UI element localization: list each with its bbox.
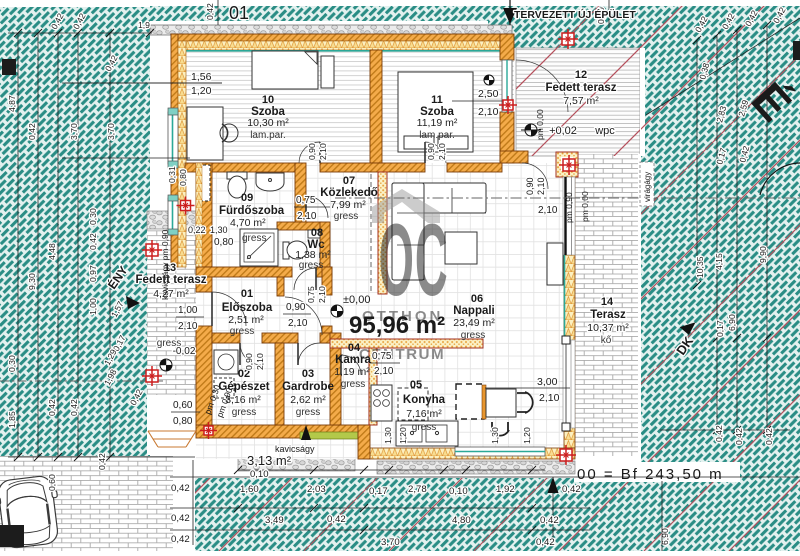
svg-text:Kamra: Kamra: [335, 354, 371, 366]
svg-text:0,31: 0,31: [167, 166, 177, 183]
svg-text:4,87: 4,87: [7, 95, 17, 112]
svg-text:10: 10: [262, 94, 274, 106]
svg-text:2,10: 2,10: [478, 106, 499, 118]
svg-text:0,42: 0,42: [27, 123, 37, 140]
svg-text:2,10: 2,10: [317, 286, 327, 303]
svg-text:gress: gress: [341, 379, 365, 390]
svg-text:2,10: 2,10: [255, 353, 265, 370]
svg-text:-0,02: -0,02: [173, 346, 196, 357]
svg-text:lam.par.: lam.par.: [250, 130, 286, 141]
svg-text:6,90: 6,90: [660, 528, 670, 545]
svg-text:0,42: 0,42: [171, 534, 190, 545]
svg-text:0,42: 0,42: [714, 425, 724, 442]
svg-text:0,42: 0,42: [536, 537, 555, 548]
svg-text:0,80: 0,80: [178, 169, 188, 186]
svg-text:7,16 m²: 7,16 m²: [406, 408, 442, 420]
svg-text:0,42: 0,42: [69, 399, 79, 416]
svg-text:0,60: 0,60: [47, 474, 57, 491]
svg-text:1,92: 1,92: [496, 484, 515, 495]
svg-text:0,75: 0,75: [372, 351, 392, 362]
svg-text:6,90: 6,90: [727, 314, 737, 331]
svg-text:gress: gress: [412, 422, 436, 433]
svg-text:0,42: 0,42: [540, 515, 559, 526]
svg-text:4,48: 4,48: [47, 243, 57, 260]
svg-text:01: 01: [241, 288, 253, 300]
svg-text:2,10: 2,10: [539, 392, 560, 404]
svg-text:virágágy: virágágy: [643, 172, 652, 202]
svg-text:gress: gress: [230, 326, 254, 337]
svg-text:1,20: 1,20: [398, 427, 408, 444]
svg-text:0,17: 0,17: [715, 320, 725, 337]
svg-text:2,10: 2,10: [318, 143, 328, 160]
svg-text:10,37 m²: 10,37 m²: [587, 322, 629, 334]
svg-text:09: 09: [241, 192, 253, 204]
svg-text:1,60: 1,60: [240, 484, 259, 495]
svg-text:0,42: 0,42: [205, 3, 215, 20]
svg-text:03: 03: [302, 368, 314, 380]
svg-text:pm 0,90: pm 0,90: [564, 192, 574, 223]
svg-text:Előszoba: Előszoba: [222, 302, 273, 314]
svg-text:2,10: 2,10: [536, 177, 546, 195]
svg-text:4,70 m²: 4,70 m²: [230, 217, 266, 229]
svg-text:9,90: 9,90: [758, 246, 768, 263]
svg-text:Fedett terasz: Fedett terasz: [136, 274, 207, 286]
svg-text:00 = Bf 243,50 m: 00 = Bf 243,50 m: [577, 466, 724, 483]
svg-text:pm 0,00: pm 0,00: [580, 191, 590, 222]
svg-text:Közlekedő: Közlekedő: [320, 187, 378, 199]
svg-text:1,56: 1,56: [191, 71, 212, 83]
svg-text:1,30: 1,30: [210, 225, 228, 235]
svg-text:4,15: 4,15: [714, 253, 724, 270]
svg-text:gress: gress: [232, 407, 256, 418]
svg-text:0,42: 0,42: [327, 514, 346, 525]
svg-text:2,10: 2,10: [288, 318, 308, 329]
svg-text:Nappali: Nappali: [453, 305, 495, 317]
svg-text:9,30: 9,30: [27, 273, 37, 290]
svg-text:Fürdőszoba: Fürdőszoba: [219, 205, 285, 217]
svg-text:3,49: 3,49: [265, 515, 284, 526]
svg-text:4,27 m²: 4,27 m²: [153, 288, 189, 300]
svg-text:11,19 m²: 11,19 m²: [417, 117, 458, 129]
svg-text:0,90: 0,90: [244, 353, 254, 370]
svg-text:10,30 m²: 10,30 m²: [247, 117, 289, 129]
svg-text:kő: kő: [601, 335, 612, 346]
svg-text:0,42: 0,42: [171, 483, 190, 494]
svg-text:2,10: 2,10: [178, 321, 198, 332]
svg-text:0,80: 0,80: [214, 237, 234, 248]
svg-text:10,35: 10,35: [695, 256, 705, 278]
svg-text:0,90: 0,90: [286, 302, 306, 313]
svg-text:0,42: 0,42: [97, 453, 107, 470]
svg-text:7,99 m²: 7,99 m²: [330, 199, 366, 211]
svg-text:0,42: 0,42: [734, 428, 744, 445]
svg-text:pm 0,00: pm 0,00: [535, 109, 545, 140]
svg-text:1,20: 1,20: [522, 427, 532, 444]
svg-text:23,49 m²: 23,49 m²: [453, 317, 495, 329]
svg-text:OC: OC: [379, 203, 449, 317]
svg-text:2,10: 2,10: [297, 211, 317, 222]
svg-text:gress: gress: [242, 233, 266, 244]
svg-text:0,80: 0,80: [173, 416, 193, 427]
svg-text:0,10: 0,10: [449, 486, 468, 497]
svg-text:1,00: 1,00: [178, 305, 198, 316]
svg-text:01: 01: [229, 3, 249, 23]
svg-text:06: 06: [471, 293, 483, 305]
svg-text:Fedett terasz: Fedett terasz: [546, 82, 617, 94]
svg-text:2,10: 2,10: [538, 205, 558, 216]
svg-text:0,75: 0,75: [296, 195, 316, 206]
svg-text:0,30: 0,30: [88, 208, 98, 225]
svg-text:0,42: 0,42: [171, 513, 190, 524]
svg-text:0,30: 0,30: [7, 355, 17, 372]
svg-text:0,10: 0,10: [250, 469, 269, 480]
svg-text:Gardrobe: Gardrobe: [282, 381, 334, 393]
svg-text:11: 11: [431, 94, 443, 106]
svg-text:95,96 m²: 95,96 m²: [349, 312, 445, 339]
svg-text:05: 05: [410, 379, 422, 391]
svg-text:lam.par.: lam.par.: [419, 130, 455, 141]
svg-text:1,9: 1,9: [138, 20, 150, 30]
svg-text:0,42: 0,42: [88, 233, 98, 250]
svg-text:0,60: 0,60: [173, 400, 193, 411]
svg-text:0,22: 0,22: [188, 225, 206, 235]
svg-text:2,10: 2,10: [374, 366, 394, 377]
svg-text:4,80: 4,80: [452, 515, 471, 526]
svg-text:0,97: 0,97: [88, 265, 98, 282]
svg-text:2,51 m²: 2,51 m²: [228, 314, 264, 326]
svg-text:wpc: wpc: [594, 125, 615, 137]
svg-text:0,42: 0,42: [764, 428, 774, 445]
svg-text:gress: gress: [334, 211, 358, 222]
svg-text:1,30: 1,30: [383, 427, 393, 444]
svg-text:3,70: 3,70: [106, 123, 116, 140]
svg-text:2,03: 2,03: [307, 484, 326, 495]
svg-text:0,75: 0,75: [306, 286, 316, 303]
svg-text:04: 04: [348, 342, 361, 354]
svg-text:1,00: 1,00: [88, 298, 98, 315]
svg-text:1,30: 1,30: [490, 427, 500, 444]
svg-text:14: 14: [601, 296, 614, 308]
svg-text:3,00: 3,00: [537, 376, 558, 388]
svg-text:3,70: 3,70: [69, 123, 79, 140]
svg-text:0,90: 0,90: [426, 143, 436, 160]
svg-text:1,85: 1,85: [7, 411, 17, 428]
svg-text:+0,02: +0,02: [549, 125, 577, 137]
svg-text:07: 07: [343, 175, 355, 187]
svg-text:Terasz: Terasz: [590, 309, 626, 321]
svg-text:12: 12: [575, 69, 587, 81]
svg-text:gress: gress: [461, 330, 485, 341]
svg-text:gress: gress: [296, 407, 320, 418]
svg-text:0,90: 0,90: [307, 143, 317, 160]
svg-text:08: 08: [311, 227, 323, 239]
svg-text:7,57 m²: 7,57 m²: [563, 95, 599, 107]
svg-text:gress: gress: [299, 260, 323, 271]
svg-text:2,78: 2,78: [408, 484, 427, 495]
svg-text:2,62 m²: 2,62 m²: [290, 394, 326, 406]
svg-text:0,42: 0,42: [47, 399, 57, 416]
svg-text:1,19 m²: 1,19 m²: [334, 366, 370, 378]
svg-text:kavicságy pm 0,90: kavicságy pm 0,90: [160, 229, 170, 300]
svg-text:0,42: 0,42: [562, 484, 581, 495]
svg-text:2,50: 2,50: [478, 88, 499, 100]
svg-text:0,90: 0,90: [525, 177, 535, 195]
svg-text:Konyha: Konyha: [403, 394, 446, 406]
svg-text:1,20: 1,20: [191, 85, 212, 97]
svg-text:0,17: 0,17: [369, 486, 388, 497]
svg-text:±0,00: ±0,00: [343, 294, 370, 306]
svg-text:TERVEZETT ÚJ ÉPÜLET: TERVEZETT ÚJ ÉPÜLET: [514, 8, 636, 21]
svg-text:3,13 m²: 3,13 m²: [247, 453, 292, 468]
svg-text:3,70: 3,70: [381, 537, 400, 548]
svg-text:2,10: 2,10: [437, 143, 447, 160]
